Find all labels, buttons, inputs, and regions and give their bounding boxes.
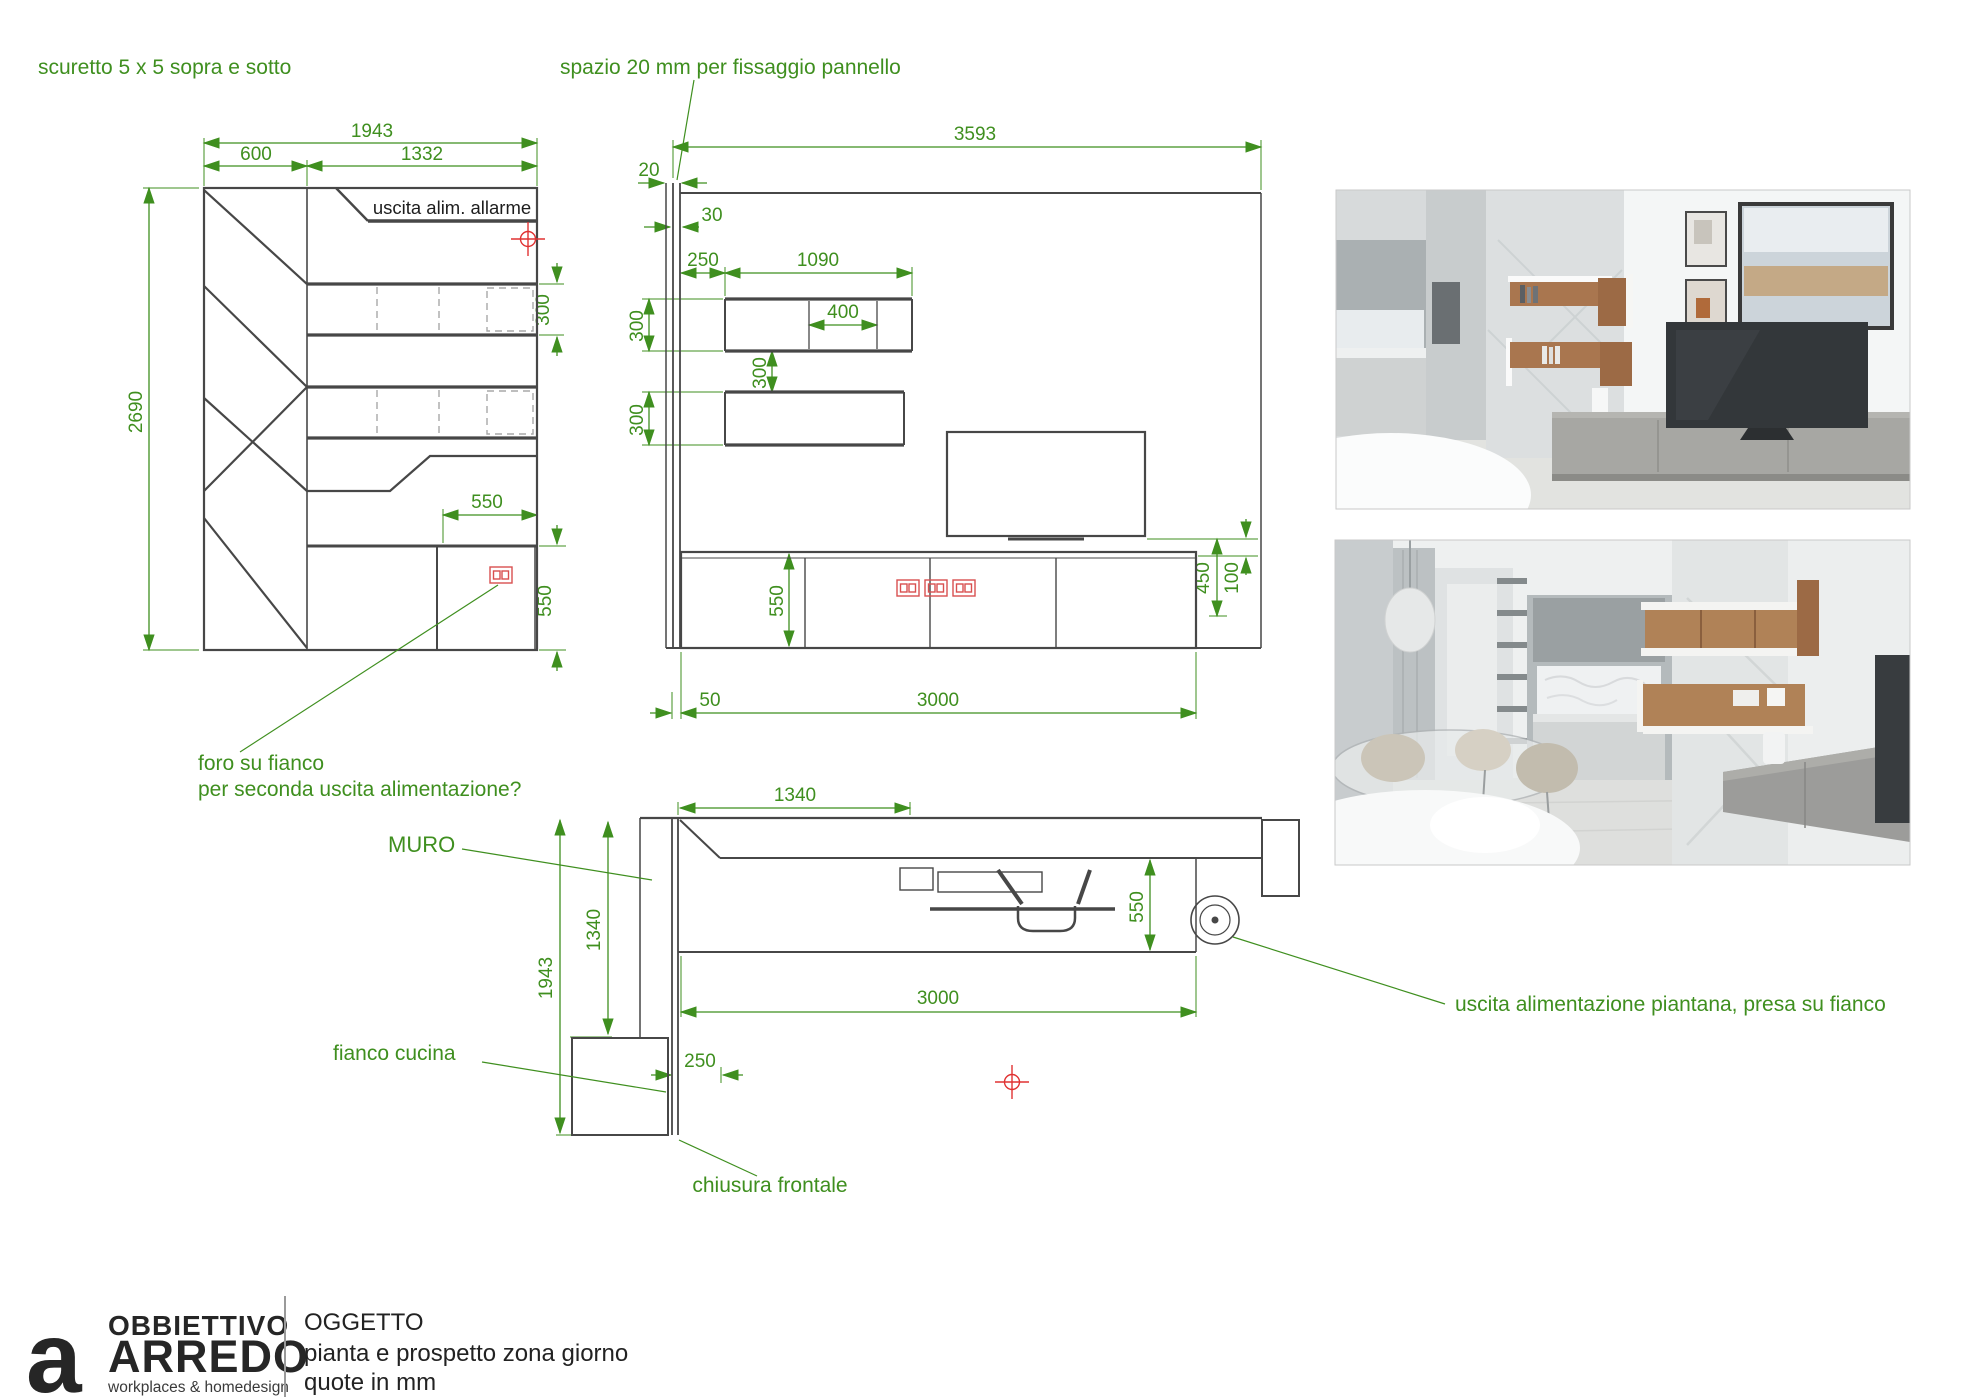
elev-dim-tv-gap: 100	[1222, 562, 1243, 594]
elev-dim-shelf-gap: 300	[750, 357, 771, 389]
note-foro-line1: foro su fianco	[198, 752, 324, 775]
elevation-drawing: 3593 20 30 250 1090 400 300 300 300 550 …	[627, 80, 1261, 719]
tv	[1875, 655, 1910, 823]
brand-logo-mark: a	[26, 1302, 83, 1399]
plan-dim-top-width: 1340	[774, 785, 816, 806]
plan-column-block	[1262, 820, 1299, 896]
elev-dim-offset: 250	[687, 250, 719, 271]
elev-dim-gap: 20	[638, 160, 659, 181]
technical-drawing-canvas: scuretto 5 x 5 sopra e sotto spazio 20 m…	[0, 0, 1980, 1399]
crosshair-icon	[995, 1065, 1029, 1099]
object-description: pianta e prospetto zona giorno	[304, 1340, 628, 1367]
front-dim-right-width: 1332	[401, 144, 443, 165]
drawing-sheet: scuretto 5 x 5 sopra e sotto spazio 20 m…	[0, 0, 1980, 1399]
socket-icon	[925, 580, 947, 596]
label-muro: MURO	[388, 832, 455, 857]
render-photo-top	[1251, 190, 1910, 557]
socket-icon	[490, 567, 512, 583]
note-foro-line2: per seconda uscita alimentazione?	[198, 778, 521, 801]
brand-tagline: workplaces & homedesign	[107, 1379, 289, 1396]
plan-dim-wall: 1340	[584, 909, 605, 951]
label-fianco-cucina: fianco cucina	[333, 1042, 456, 1065]
socket-icon	[953, 580, 975, 596]
elev-dim-shelf-inner: 400	[827, 302, 859, 323]
elev-dim-base-offset: 50	[699, 690, 720, 711]
note-spazio: spazio 20 mm per fissaggio pannello	[560, 56, 901, 79]
elev-dim-shelf-width: 1090	[797, 250, 839, 271]
plan-kitchen-side	[572, 1038, 668, 1135]
elev-dim-base-height: 550	[767, 585, 788, 617]
tv-bracket-plan	[900, 868, 1115, 931]
front-dim-base-width: 550	[471, 492, 503, 513]
front-dim-height: 2690	[126, 391, 147, 433]
plan-dim-length: 3000	[917, 988, 959, 1009]
elev-dim-total: 3593	[954, 124, 996, 145]
label-uscita-piantana: uscita alimentazione piantana, presa su …	[1455, 993, 1886, 1016]
render-photo-bottom	[1270, 540, 1910, 906]
plan-dim-side: 1943	[536, 957, 557, 999]
front-label-alarm-outlet: uscita alim. allarme	[373, 197, 531, 218]
plan-dim-depth: 550	[1127, 891, 1148, 923]
front-dim-total-width: 1943	[351, 121, 393, 142]
plan-dim-return: 250	[684, 1051, 716, 1072]
note-scuretto: scuretto 5 x 5 sopra e sotto	[38, 56, 291, 79]
elev-dim-base-width: 3000	[917, 690, 959, 711]
socket-icon	[897, 580, 919, 596]
outlet-circle-icon	[1191, 896, 1239, 944]
label-chiusura-frontale: chiusura frontale	[692, 1174, 847, 1197]
crosshair-icon	[511, 222, 545, 256]
front-dim-base-height: 550	[535, 585, 556, 617]
tv-front	[947, 432, 1145, 536]
brand-name-bottom: ARREDO	[108, 1331, 309, 1382]
front-view-drawing: 1943 600 1332 2690 300 550 550	[126, 121, 566, 801]
elev-dim-shelf2-height: 300	[627, 404, 648, 436]
tv	[1666, 322, 1868, 440]
title-block: a OBBIETTIVO ARREDO workplaces & homedes…	[26, 1296, 628, 1399]
front-dim-left-width: 600	[240, 144, 272, 165]
elev-dim-shelf1-height: 300	[627, 310, 648, 342]
object-units: quote in mm	[304, 1369, 436, 1396]
object-label: OGGETTO	[304, 1309, 424, 1336]
elev-dim-panel: 30	[701, 205, 722, 226]
